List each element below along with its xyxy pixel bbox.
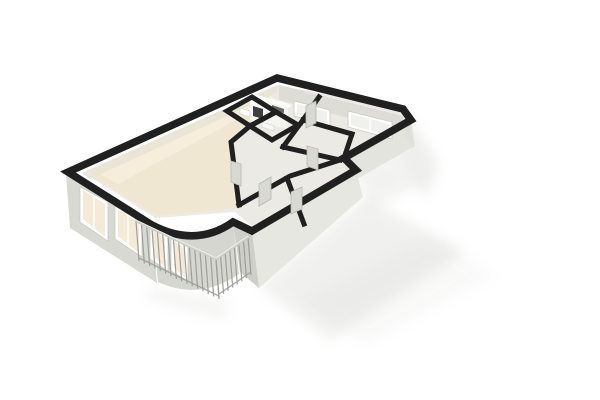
door-bedroom2: [307, 146, 318, 170]
shadow-balcony: [148, 286, 230, 320]
door-living-hall: [231, 161, 241, 186]
door-front-room: [291, 187, 302, 214]
door-bedroom1: [306, 101, 316, 128]
floorplan-render-canvas: [0, 0, 600, 400]
floorplan-3d-view: [0, 0, 600, 400]
